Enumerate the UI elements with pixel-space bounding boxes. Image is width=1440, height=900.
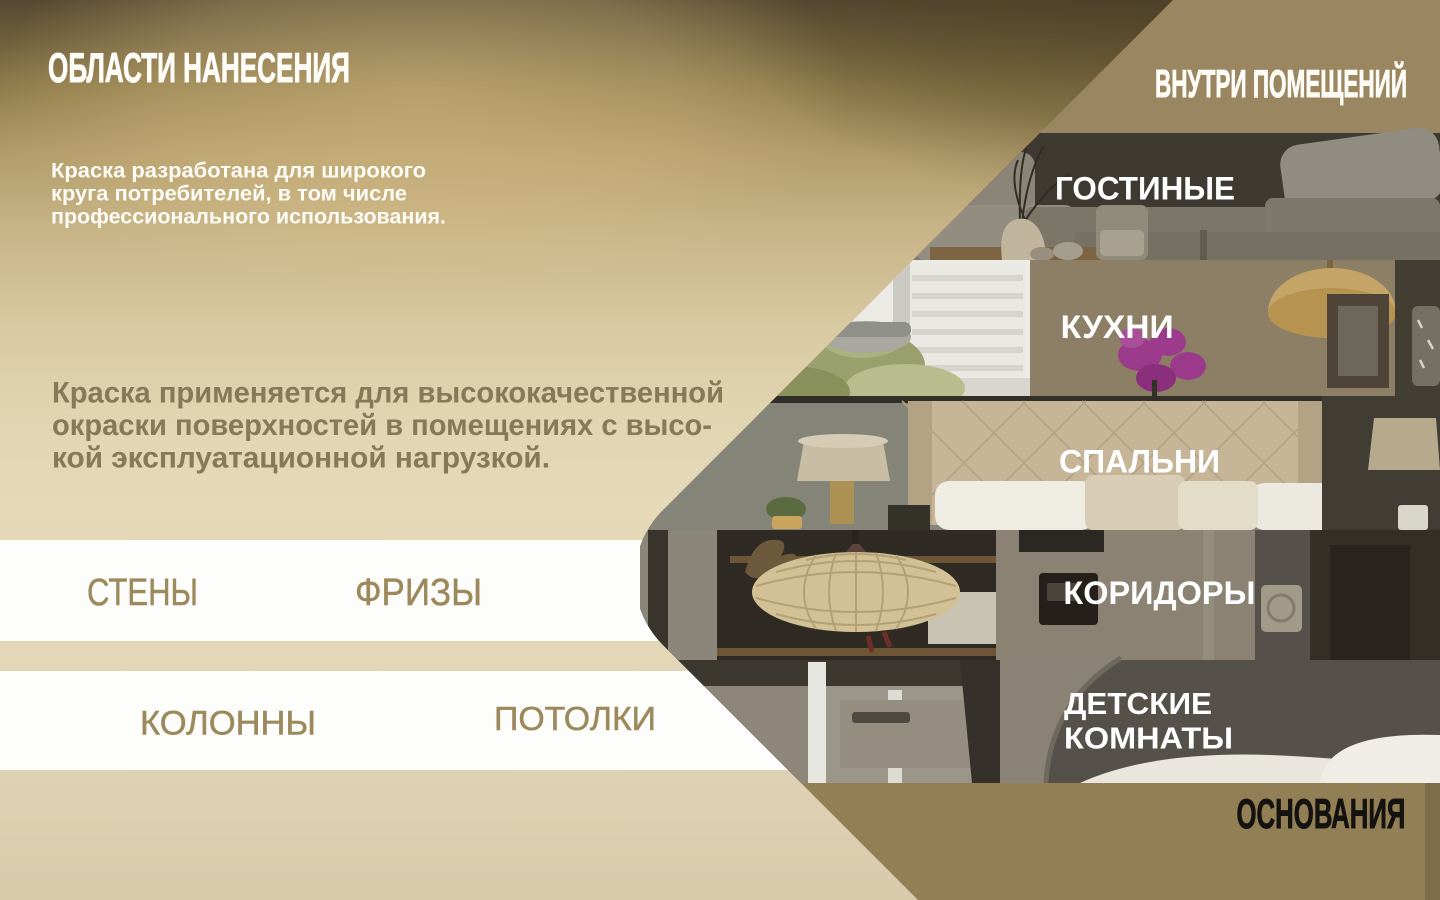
svg-text:Краска разработана для широког: Краска разработана для широкого [51,160,426,183]
svg-text:СПАЛЬНИ: СПАЛЬНИ [1059,444,1220,480]
svg-text:ГОСТИНЫЕ: ГОСТИНЫЕ [1055,170,1235,206]
svg-text:кой эксплуатационной нагрузкой: кой эксплуатационной нагрузкой. [52,442,550,475]
svg-text:КОЛОННЫ: КОЛОННЫ [140,704,316,742]
svg-text:ДЕТСКИЕ: ДЕТСКИЕ [1064,686,1212,721]
svg-text:КУХНИ: КУХНИ [1061,309,1174,345]
svg-text:СТЕНЫ: СТЕНЫ [87,572,198,614]
svg-text:круга потребителей, в том числ: круга потребителей, в том числе [51,183,407,206]
svg-text:Краска применяется для высокок: Краска применяется для высококачественно… [52,377,724,410]
svg-text:ВНУТРИ ПОМЕЩЕНИЙ: ВНУТРИ ПОМЕЩЕНИЙ [1155,61,1407,105]
svg-text:ФРИЗЫ: ФРИЗЫ [355,572,482,614]
svg-text:ОБЛАСТИ НАНЕСЕНИЯ: ОБЛАСТИ НАНЕСЕНИЯ [48,45,350,92]
svg-text:ПОТОЛКИ: ПОТОЛКИ [494,700,656,737]
svg-text:ОСНОВАНИЯ: ОСНОВАНИЯ [1237,791,1406,838]
svg-text:профессионального использовани: профессионального использования. [51,206,446,229]
svg-text:окраски поверхностей в помещен: окраски поверхностей в помещениях с высо… [52,409,712,442]
svg-text:КОРИДОРЫ: КОРИДОРЫ [1063,575,1255,611]
svg-text:КОМНАТЫ: КОМНАТЫ [1064,720,1233,755]
